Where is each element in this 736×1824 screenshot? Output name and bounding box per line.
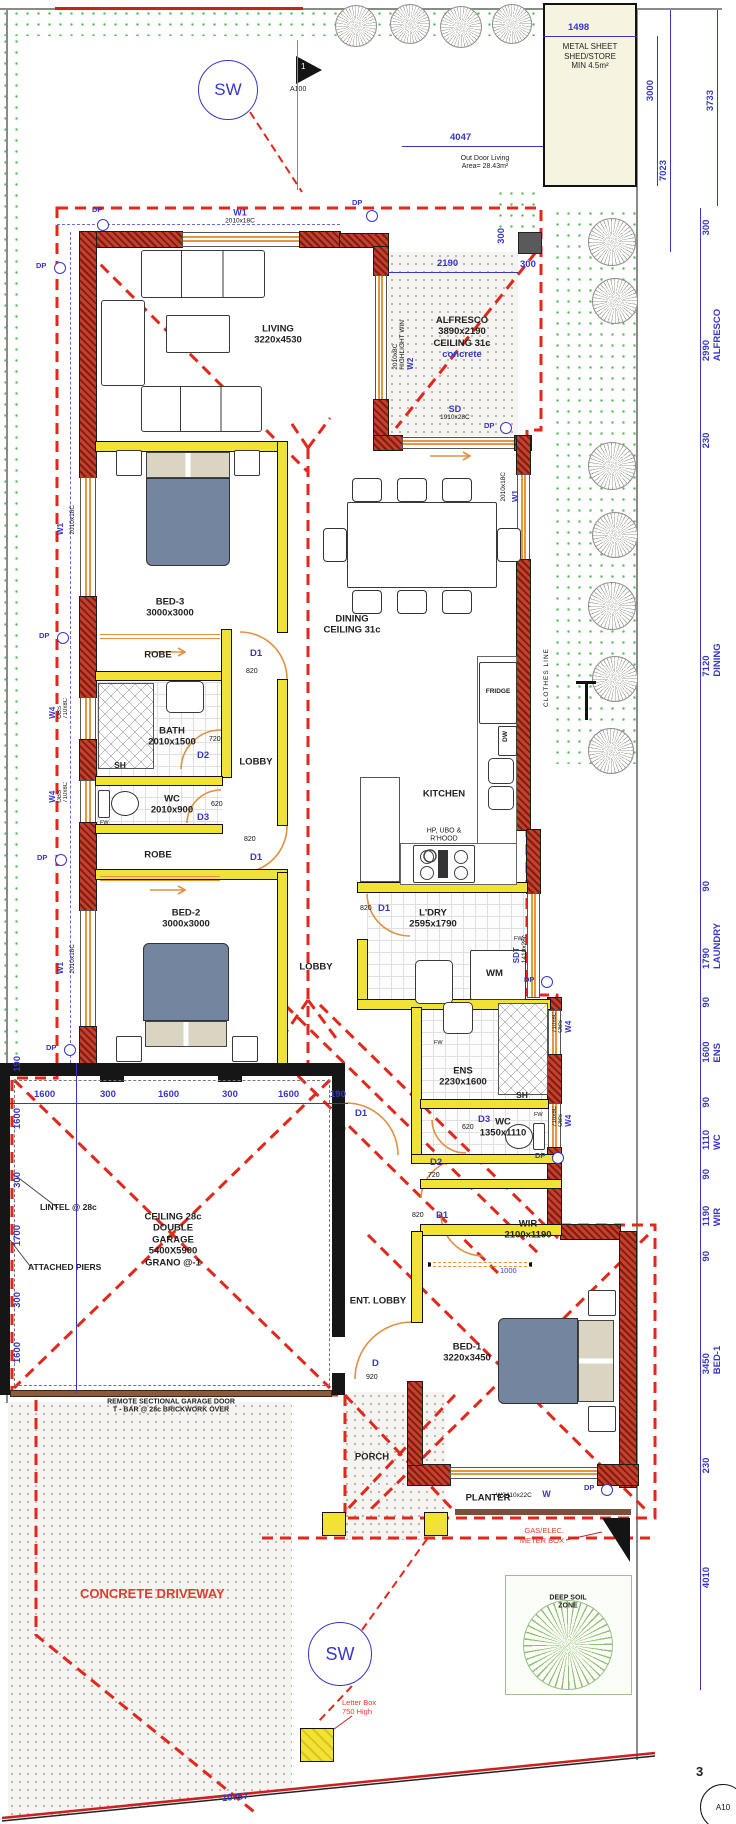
kitchen-island [360, 777, 400, 882]
bath-shower [98, 683, 154, 769]
wall-bed1-top-right [561, 1225, 620, 1239]
right-rail-1: 2990ALFRESCO [701, 309, 723, 361]
wall-right-2 [517, 560, 530, 830]
garage-dim-h-1: 300 [100, 1089, 116, 1100]
right-rail-12: 90 [701, 1249, 712, 1267]
door-label-hall: D1 [355, 1108, 367, 1119]
garage-door-bar [10, 1390, 332, 1397]
gas-meter-label: GAS/ELEC.METER BOX [508, 1526, 564, 1546]
door-width-hall: 820 [334, 1126, 346, 1133]
right-rail-10: 90 [701, 1167, 712, 1185]
wall-right-1 [517, 436, 530, 474]
right-rail-6: 90 [701, 995, 712, 1013]
dishwasher-label: DW [502, 731, 510, 742]
wall-ens-left [412, 1008, 421, 1155]
dp-label: DP [535, 1151, 545, 1160]
room-label-alfresco: ALFRESCO3890x2190 CEILING 31cconcrete [433, 315, 490, 361]
cooktop-griddle [438, 850, 448, 878]
right-rail-8: 90 [701, 1095, 712, 1113]
fw-label: FW [514, 936, 523, 942]
door-label-ens: D2 [430, 1157, 442, 1168]
garage-wall-left [0, 1063, 10, 1395]
bed2-bed [143, 943, 229, 1021]
dp-icon [541, 976, 553, 988]
window-bed1 [450, 1467, 598, 1479]
door-arc-entry [355, 1322, 412, 1379]
clothes-line-icon-post [585, 684, 588, 720]
room-label-sh-ens: SH [516, 1090, 528, 1100]
deep-soil-label: DEEP SOILZONE [549, 1595, 586, 1612]
dining-chair [442, 478, 472, 502]
bed1-side-table [588, 1406, 616, 1432]
dining-chair [497, 528, 521, 562]
wall-bed1-bottom-2 [598, 1465, 638, 1485]
robe2-rail [100, 876, 220, 881]
right-rail-11: 1190WIR [701, 1206, 723, 1227]
wall-alfresco-corner-h [340, 234, 388, 247]
dim-wir-1000: 1000 [500, 1266, 517, 1275]
window-label-w4-ens: 710x8C OBS W4 [552, 1012, 573, 1033]
sofa-side [101, 300, 145, 386]
dining-chair [352, 478, 382, 502]
wall-alfresco-corner-v [374, 247, 388, 275]
boundary-bottom-red [2, 1753, 655, 1818]
room-label-robe3: ROBE [144, 649, 171, 660]
right-rail-5: 1790LAUNDRY [701, 923, 723, 969]
garage-dim-h-3: 300 [222, 1089, 238, 1100]
bed1-side-table [588, 1290, 616, 1316]
window-left-bed2 [80, 910, 96, 1027]
door-width-ens: 720 [428, 1172, 440, 1179]
bbq-block [518, 232, 542, 254]
wc1-cistern [98, 790, 110, 818]
window-label-sd: SD 1910x28C [440, 404, 470, 421]
door-label-bed3: D1 [250, 648, 262, 659]
dp-icon [57, 632, 69, 644]
wall-bed1-left-low [408, 1382, 422, 1465]
dp-icon [552, 1152, 564, 1164]
wall-right-5 [548, 1055, 561, 1103]
room-label-bed3: BED-33000x3000 [146, 597, 194, 620]
garage-wall-top [0, 1063, 345, 1076]
wc2-cistern [533, 1123, 545, 1150]
garage-dim-v-4: 300 [12, 1292, 23, 1308]
door-width-ldry: 820 [360, 905, 372, 912]
door-width-wc2: 620 [462, 1124, 474, 1131]
dining-chair [352, 590, 382, 614]
garage-dim-v-5: 1600 [12, 1342, 23, 1363]
floor-plan-canvas: METAL SHEET SHED/STORE MIN 4.5m² 1498 30… [0, 0, 736, 1824]
right-rail-9: 1110WC [701, 1130, 723, 1150]
garage-dim-line-v [76, 1063, 77, 1393]
room-label-sh-bath: SH [114, 760, 126, 770]
bed2-side-table [232, 1036, 258, 1062]
deep-soil-tree-icon [523, 1600, 613, 1690]
dim-300-h: 300 [520, 259, 536, 270]
door-label-wc1: D3 [197, 812, 209, 823]
dp-icon [54, 262, 66, 274]
wall-top-2 [300, 232, 340, 247]
garage-dim-h-5: 190 [330, 1089, 346, 1100]
fridge-label: FRIDGE [481, 688, 515, 696]
room-label-ens: ENS2230x1600 [439, 1066, 487, 1089]
fw-label: FW [100, 820, 109, 826]
room-label-wc1: WC2010x900 [151, 794, 193, 817]
bed1-bed [498, 1318, 578, 1404]
right-rail-14: 230 [701, 1458, 712, 1479]
room-label-lobby1: LOBBY [239, 756, 272, 767]
dp-icon [55, 854, 67, 866]
right-rail-0: 300 [701, 220, 712, 241]
sd-arrow [430, 452, 470, 460]
wall-bed1-left [412, 1232, 422, 1322]
dining-table [347, 502, 497, 588]
dining-chair [323, 528, 347, 562]
door-arc-bed2 [240, 826, 287, 873]
sw-top-leader [250, 112, 302, 192]
robe2-rail-arrow [150, 886, 185, 894]
dp-label: DP [352, 198, 362, 207]
cooktop-burner [420, 866, 434, 880]
sofa-bottom [141, 386, 262, 432]
wall-alfresco-bottom-1 [374, 436, 402, 450]
window-left-bath [80, 697, 96, 740]
driveway-dash [36, 1400, 258, 1815]
door-width-bed2: 820 [244, 836, 256, 843]
dp-label: DP [524, 975, 534, 984]
right-rail-13: 3450BED-1 [701, 1346, 723, 1375]
right-rail-7: 1600ENS [701, 1041, 723, 1062]
window-label-w1-top: W1 2010x18C [225, 208, 255, 225]
bed3-pillows [146, 452, 230, 478]
sw-marker-bottom: SW [308, 1622, 372, 1686]
wall-right-3 [527, 830, 540, 893]
wall-ens-wc2 [421, 1100, 548, 1108]
wall-bed1-right [620, 1232, 636, 1487]
door-label-bed2: D1 [250, 852, 262, 863]
roof-ridge-corridor [282, 418, 336, 1075]
dining-chair [397, 590, 427, 614]
door-width-wir: 820 [412, 1212, 424, 1219]
garage-door-note: REMOTE SECTIONAL GARAGE DOORT - BAR @ 28… [107, 1399, 235, 1416]
fw-label: FW [534, 1112, 543, 1118]
dp-label: DP [584, 1483, 594, 1492]
cooktop-burner [454, 866, 468, 880]
ens-sink [443, 1002, 473, 1034]
wc1-toilet [111, 791, 139, 816]
dp-icon [97, 219, 109, 231]
ens-shower [498, 1003, 548, 1095]
right-rail-3: 7120DINING [701, 643, 723, 676]
room-label-kitchen: KITCHEN [423, 788, 465, 799]
wall-left-3 [80, 740, 96, 780]
wall-laundry-left [358, 940, 367, 1008]
dim-10757: 10757 [222, 1791, 249, 1804]
window-label-w4-wc: W4 OBS 710x8C [48, 782, 69, 803]
garage-wall-right-2 [332, 1373, 345, 1395]
wall-left-4 [80, 823, 96, 910]
garage-dim-v-1: 1600 [12, 1108, 23, 1129]
dp-label: DP [92, 205, 102, 214]
laundry-trough [415, 960, 453, 1004]
piers-note: ATTACHED PIERS [28, 1262, 101, 1272]
cooktop-label: HP, UBO &R'HOOD [427, 828, 462, 845]
dp-icon [64, 1044, 76, 1056]
room-label-ent-lobby: ENT. LOBBY [350, 1295, 406, 1306]
clothes-line-label: CLOTHES LINE [543, 648, 550, 707]
window-label-w1-bed3: W1 2010x18C [56, 505, 76, 540]
sofa-top [141, 250, 265, 298]
letter-box-label: Letter Box750 High [342, 1698, 376, 1717]
window-label-bed1: W2410x22C W [496, 1484, 551, 1502]
wall-bath-right [222, 630, 231, 777]
window-label-w4-bath: W4 OBS 710x8C [48, 698, 69, 719]
window-left-wc [80, 780, 96, 823]
wall-robe3-bottom [96, 672, 226, 680]
dining-chair [442, 590, 472, 614]
door-label-wir: D1 [436, 1210, 448, 1221]
dp-icon [366, 210, 378, 222]
fw-label: FW [434, 1040, 443, 1046]
room-label-bed2: BED-23000x3000 [162, 908, 210, 931]
door-arc-wc2 [432, 1120, 466, 1153]
room-label-lobby2: LOBBY [299, 961, 332, 972]
bed3-bed [146, 478, 230, 566]
lintel-note: LINTEL @ 28c [40, 1202, 97, 1212]
wm-label: WM [486, 968, 503, 979]
coffee-table [166, 315, 230, 353]
door-label-wc2: D3 [478, 1114, 490, 1125]
window-label-w4-wc2: 710x8C OBS W4 [552, 1106, 573, 1127]
wall-wir-top [421, 1180, 561, 1188]
room-label-garage: CEILING 28cDOUBLE GARAGE5400X5900 GRANO … [144, 1212, 201, 1269]
door-label-entry: D [372, 1358, 379, 1369]
section-marker-number: 3 [696, 1764, 703, 1780]
door-label-bath: D2 [197, 750, 209, 761]
garage-dim-v-0: 190 [12, 1056, 23, 1072]
room-label-robe2: ROBE [144, 849, 171, 860]
door-arc-ldry [367, 894, 410, 936]
dp-label: DP [46, 1043, 56, 1052]
wall-wc-bottom [96, 825, 222, 833]
dim-line-left-offset [70, 232, 72, 1063]
window-label-w1-dining: 2010x18C W1 [500, 472, 520, 507]
garage-dim-h-2: 1600 [158, 1089, 179, 1100]
section-marker-sheet: A10 [716, 1803, 730, 1812]
porch-post-right [425, 1513, 447, 1535]
robe3-rail [100, 634, 220, 639]
dp-label: DP [484, 421, 494, 430]
sw-bottom-label: SW [326, 1644, 355, 1665]
boundary-bottom-black [2, 1756, 655, 1821]
dim-line-2190 [388, 272, 518, 273]
window-label-w1-bed2: W1 2010x18C [56, 944, 76, 979]
wall-corridor-2 [278, 873, 287, 1063]
dp-label: DP [36, 261, 46, 270]
wall-left-5 [80, 1027, 96, 1063]
letter-box [300, 1728, 334, 1762]
door-width-bed3: 820 [246, 668, 258, 675]
room-label-bath: BATH2010x1500 [148, 726, 196, 749]
door-width-wc1: 620 [211, 801, 223, 808]
wall-bath-wc [96, 777, 222, 785]
wall-bed3-right [278, 442, 287, 632]
kitchen-sink-1 [488, 758, 514, 784]
garage-dim-line-h [10, 1103, 348, 1104]
window-top-w1 [182, 232, 300, 247]
window-w2-highlight [375, 275, 387, 400]
gas-meter-box [602, 1518, 630, 1562]
door-label-ldry: D1 [378, 903, 390, 914]
window-label-w2: 2010x8C HIGHLIGHT WIN W2 [392, 320, 415, 370]
bed3-side-table [116, 450, 142, 476]
dp-icon [601, 1484, 613, 1496]
right-rail-4: 90 [701, 879, 712, 897]
wall-bed1-bottom-1 [408, 1465, 450, 1485]
linework-overlay [0, 0, 736, 1824]
room-label-bed1: BED-13220x3450 [443, 1342, 491, 1365]
door-width-entry: 920 [366, 1374, 378, 1381]
bed1-pillows [578, 1320, 614, 1402]
window-sd [402, 437, 518, 449]
bed3-side-table [234, 450, 260, 476]
dining-chair [397, 478, 427, 502]
window-left-bed3 [80, 477, 96, 597]
room-label-living: LIVING3220x4530 [254, 324, 302, 347]
dp-icon [500, 422, 512, 434]
bed2-side-table [116, 1036, 142, 1062]
cooktop-burner [454, 850, 468, 864]
bath-sink [166, 681, 204, 713]
concrete-driveway-label: CONCRETE DRIVEWAY [80, 1586, 225, 1601]
door-width-bath: 720 [209, 736, 221, 743]
bed2-pillows [145, 1021, 227, 1047]
right-rail-2: 230 [701, 433, 712, 454]
garage-dim-h-4: 1600 [278, 1089, 299, 1100]
garage-dim-v-2: 300 [12, 1172, 23, 1188]
garage-dim-v-3: 1700 [12, 1225, 23, 1246]
room-label-dining: DININGCEILING 31c [323, 614, 380, 637]
room-label-ldry: L'DRY2595x1790 [409, 908, 457, 931]
porch-post-left [323, 1513, 345, 1535]
garage-dim-h-0: 1600 [34, 1089, 55, 1100]
kitchen-sink-2 [488, 786, 514, 810]
planter-edge [455, 1509, 631, 1515]
dim-300-v: 300 [496, 228, 507, 244]
room-label-porch: PORCH [355, 1451, 389, 1462]
dp-label: DP [39, 631, 49, 640]
room-label-wir: WIR2100x1190 [504, 1219, 551, 1242]
cooktop-burner [420, 850, 434, 864]
right-rail-15: 4010 [701, 1567, 712, 1593]
wall-corridor-1 [278, 680, 287, 825]
dim-2190: 2190 [437, 258, 458, 269]
dp-label: DP [37, 853, 47, 862]
wall-left-1 [80, 232, 96, 477]
wall-left-2 [80, 597, 96, 697]
